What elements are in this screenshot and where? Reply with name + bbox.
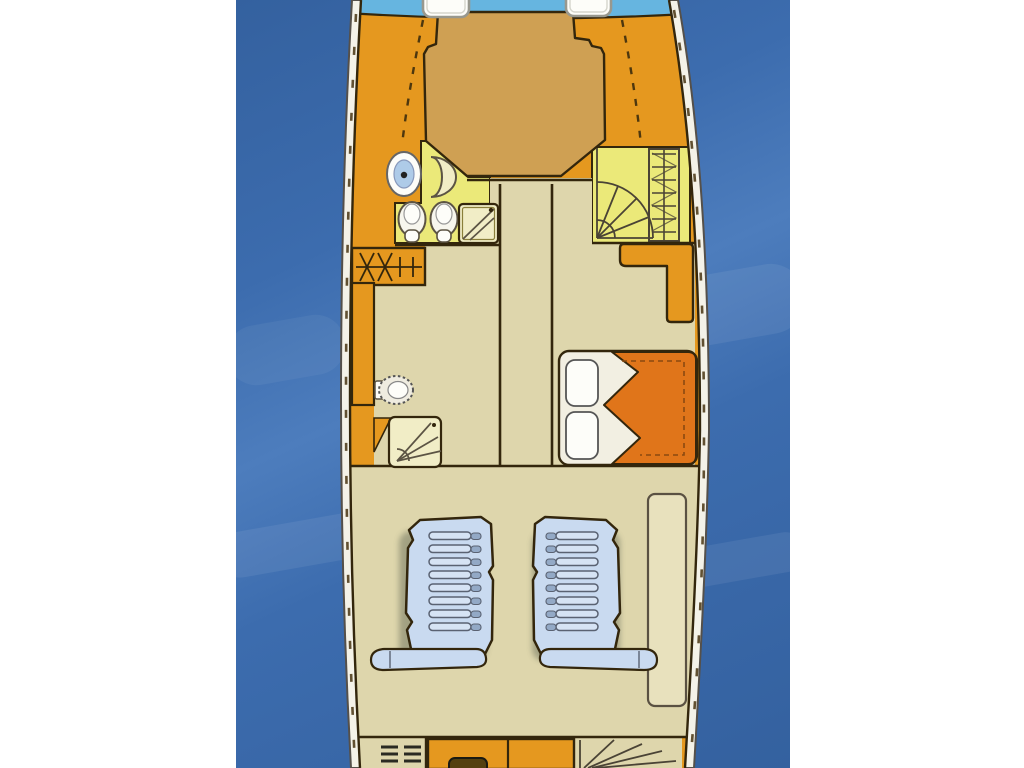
pillow	[566, 360, 598, 406]
washbasin	[387, 152, 421, 196]
deck-hatch	[566, 0, 611, 16]
port-side-cabinet	[352, 283, 374, 405]
bow-shower-pan	[459, 204, 498, 243]
double-bed	[559, 351, 697, 465]
galley-sink	[449, 758, 487, 768]
page-background	[0, 0, 1024, 768]
seat-arm-left	[371, 649, 486, 670]
wardrobe	[352, 248, 425, 285]
port-shower	[389, 417, 441, 467]
deck-hatch	[423, 0, 469, 17]
yacht-floor-plan	[0, 0, 1024, 768]
side-counter	[648, 494, 686, 706]
pillow	[566, 412, 598, 459]
